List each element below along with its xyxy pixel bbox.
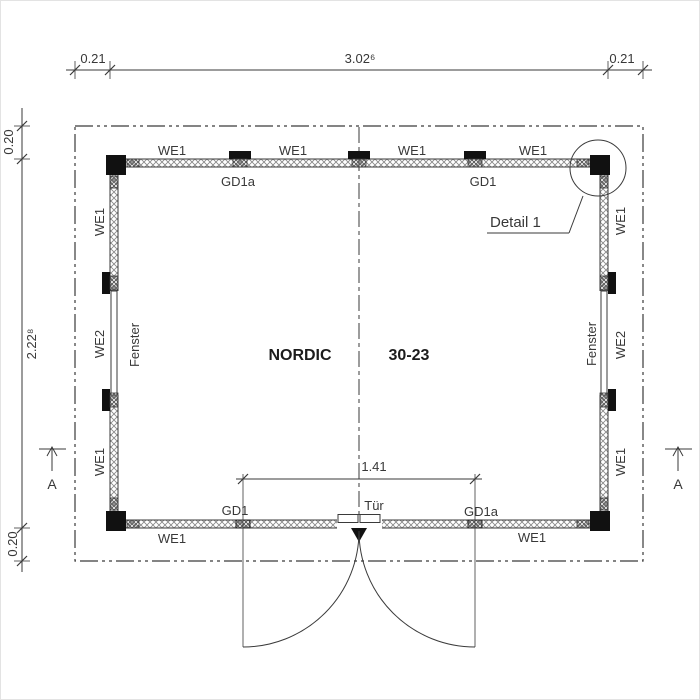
label-we1-left-top: WE1 — [92, 208, 107, 236]
dim-door-width: 1.41 — [361, 459, 386, 474]
post-top-left — [106, 155, 126, 175]
window-right — [601, 291, 607, 395]
label-we1-right-bottom: WE1 — [613, 448, 628, 476]
label-section-a-right: A — [673, 476, 683, 492]
label-section-a-left: A — [47, 476, 57, 492]
post-top-right — [590, 155, 610, 175]
dim-overhang-left: 0.21 — [80, 51, 105, 66]
label-gd1a-top: GD1a — [221, 174, 256, 189]
drawing-sheet: 1.41 0.21 3.02⁶ 0.21 0.20 2.22⁸ 0.20 WE1… — [0, 0, 700, 700]
door-leaf-left — [338, 515, 358, 523]
label-we1-top-2: WE1 — [279, 143, 307, 158]
label-we1-bottom-left: WE1 — [158, 531, 186, 546]
door-swing-left — [243, 531, 359, 647]
floor-plan-drawing: 1.41 0.21 3.02⁶ 0.21 0.20 2.22⁸ 0.20 WE1… — [0, 0, 700, 700]
model-name: NORDIC — [268, 347, 332, 364]
label-we1-top-1: WE1 — [158, 143, 186, 158]
label-gd1-top: GD1 — [470, 174, 497, 189]
label-we1-bottom-right: WE1 — [518, 530, 546, 545]
window-left — [111, 291, 117, 395]
label-tuer: Tür — [364, 498, 384, 513]
door-leaf-right — [360, 515, 380, 523]
dim-overall-depth: 2.22⁸ — [24, 329, 39, 360]
dim-overhang-bottom: 0.20 — [5, 531, 20, 556]
label-we1-top-3: WE1 — [398, 143, 426, 158]
label-fenster-right: Fenster — [584, 321, 599, 366]
label-we1-top-4: WE1 — [519, 143, 547, 158]
label-we1-right-top: WE1 — [613, 207, 628, 235]
label-we2-left: WE2 — [92, 330, 107, 358]
label-we2-right: WE2 — [613, 331, 628, 359]
corner-posts — [106, 155, 610, 531]
door-swing-right — [359, 531, 475, 647]
label-gd1a-bottom: GD1a — [464, 504, 499, 519]
dim-overhang-right: 0.21 — [609, 51, 634, 66]
post-bottom-right — [590, 511, 610, 531]
label-fenster-left: Fenster — [127, 322, 142, 367]
label-we1-left-bottom: WE1 — [92, 448, 107, 476]
label-detail-1: Detail 1 — [490, 214, 541, 231]
section-marker-right — [665, 447, 692, 471]
model-code: 30-23 — [389, 347, 430, 364]
section-marker-left — [39, 447, 66, 471]
dim-overall-width: 3.02⁶ — [345, 51, 376, 66]
dim-overhang-top: 0.20 — [1, 129, 16, 154]
post-bottom-left — [106, 511, 126, 531]
label-gd1-bottom: GD1 — [222, 503, 249, 518]
